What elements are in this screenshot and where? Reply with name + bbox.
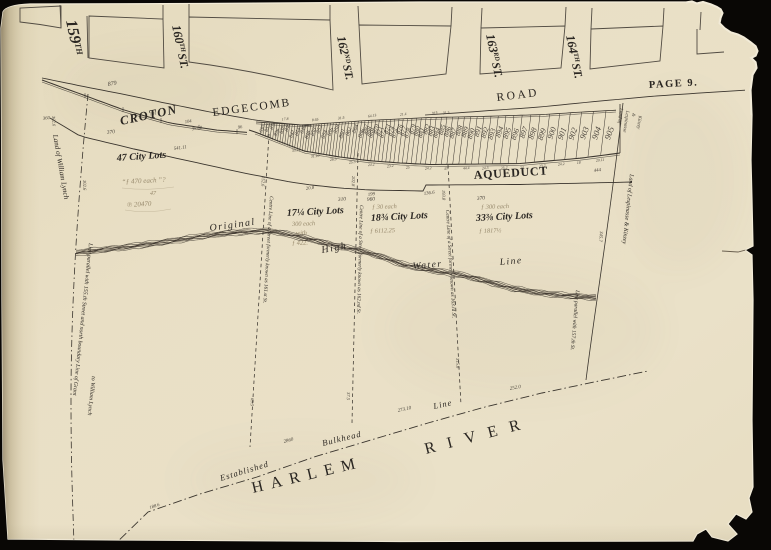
svg-text:18: 18 xyxy=(577,161,581,165)
svg-text:362.6: 362.6 xyxy=(51,116,57,127)
svg-text:302.6: 302.6 xyxy=(82,180,87,191)
svg-text:915: 915 xyxy=(432,111,438,116)
svg-text:24.2: 24.2 xyxy=(425,166,432,171)
svg-text:25: 25 xyxy=(406,165,410,169)
svg-text:ƒ 300 each: ƒ 300 each xyxy=(481,203,509,211)
svg-text:300 each: 300 each xyxy=(291,220,315,228)
svg-text:370: 370 xyxy=(476,195,486,202)
svg-text:43: 43 xyxy=(444,166,448,170)
svg-text:193.8: 193.8 xyxy=(441,190,447,201)
svg-text:24.2: 24.2 xyxy=(368,162,375,167)
svg-text:℗ 20470: ℗ 20470 xyxy=(127,200,152,209)
svg-text:152.6: 152.6 xyxy=(260,176,266,187)
svg-text:370: 370 xyxy=(106,129,116,136)
svg-text:ƒ 6112.25: ƒ 6112.25 xyxy=(370,227,395,235)
svg-text:ƒ 30 each: ƒ 30 each xyxy=(372,203,397,211)
svg-text:315.6: 315.6 xyxy=(455,358,461,369)
svg-text:310: 310 xyxy=(337,196,347,203)
svg-text:26.3: 26.3 xyxy=(330,157,337,162)
svg-text:25.3: 25.3 xyxy=(349,160,356,165)
svg-text:ƒ 1817½: ƒ 1817½ xyxy=(479,227,502,235)
svg-text:44.4: 44.4 xyxy=(463,166,470,171)
svg-text:202.8: 202.8 xyxy=(351,176,356,187)
svg-text:37.5: 37.5 xyxy=(346,392,351,401)
svg-text:Line: Line xyxy=(498,256,523,268)
svg-text:24.2: 24.2 xyxy=(558,162,565,167)
svg-text:23.2: 23.2 xyxy=(387,164,394,169)
svg-text:69.5: 69.5 xyxy=(250,398,255,407)
svg-text:47: 47 xyxy=(150,190,157,197)
svg-text:345.7: 345.7 xyxy=(597,231,603,243)
svg-text:960: 960 xyxy=(367,196,376,203)
